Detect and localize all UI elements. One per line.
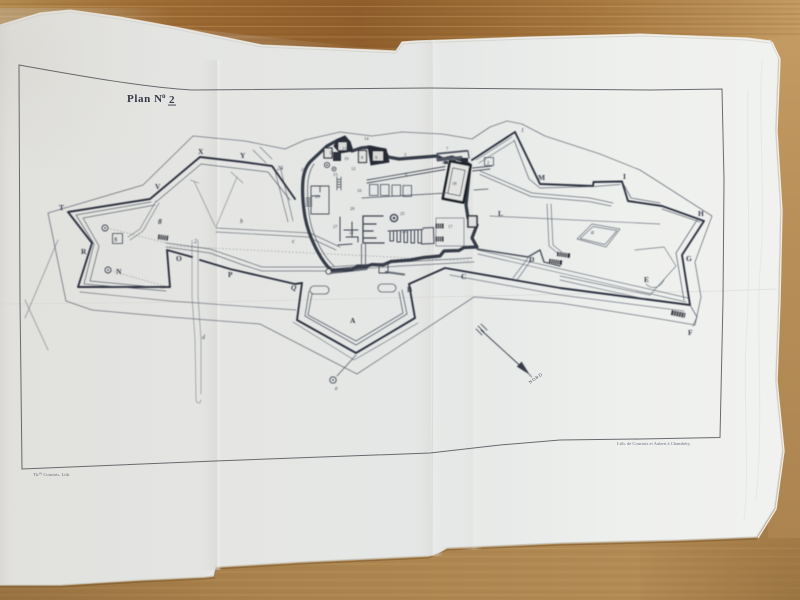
svg-text:13: 13 xyxy=(342,146,347,151)
svg-text:N: N xyxy=(116,267,122,276)
svg-text:F: F xyxy=(688,328,693,337)
svg-text:E: E xyxy=(644,275,649,284)
svg-text:27: 27 xyxy=(333,224,338,229)
svg-text:25: 25 xyxy=(400,211,405,216)
svg-text:D: D xyxy=(529,255,535,264)
svg-text:10: 10 xyxy=(344,156,349,161)
svg-text:1: 1 xyxy=(521,128,524,134)
svg-text:18: 18 xyxy=(452,181,457,186)
svg-text:Plan N: Plan N xyxy=(127,93,163,105)
svg-text:c: c xyxy=(292,239,295,245)
svg-text:A: A xyxy=(350,316,356,325)
svg-text:2: 2 xyxy=(194,239,197,245)
svg-text:12: 12 xyxy=(351,166,356,171)
svg-text:H: H xyxy=(698,209,704,218)
svg-text:2: 2 xyxy=(169,94,175,106)
svg-text:O: O xyxy=(176,254,182,263)
svg-text:23: 23 xyxy=(315,194,320,199)
svg-text:V: V xyxy=(155,182,161,191)
svg-text:M: M xyxy=(538,173,545,182)
svg-text:a: a xyxy=(591,230,594,236)
svg-text:11: 11 xyxy=(329,150,334,155)
svg-text:B: B xyxy=(407,285,412,294)
svg-text:24: 24 xyxy=(402,229,407,234)
svg-text:24: 24 xyxy=(277,165,283,172)
svg-text:I: I xyxy=(623,172,626,181)
svg-text:L: L xyxy=(498,209,503,218)
svg-text:22: 22 xyxy=(349,230,354,235)
svg-text:e: e xyxy=(335,386,338,392)
svg-text:15: 15 xyxy=(333,172,338,177)
svg-text:P: P xyxy=(228,270,233,279)
svg-text:Lith. de Courtois et Aubert à: Lith. de Courtois et Aubert à Chambéry. xyxy=(617,441,691,446)
svg-text:21: 21 xyxy=(301,167,306,172)
svg-text:16: 16 xyxy=(357,188,362,193)
svg-text:17: 17 xyxy=(448,224,453,229)
svg-text:20: 20 xyxy=(350,206,355,211)
svg-text:Y: Y xyxy=(240,151,246,160)
svg-text:Q: Q xyxy=(291,283,297,292)
svg-text:G: G xyxy=(686,254,692,263)
svg-text:8: 8 xyxy=(158,217,162,226)
svg-text:14: 14 xyxy=(364,136,369,141)
svg-text:T: T xyxy=(59,203,64,212)
svg-text:o: o xyxy=(162,92,166,100)
svg-text:C: C xyxy=(461,272,466,281)
svg-text:b: b xyxy=(240,219,243,225)
svg-text:R: R xyxy=(81,247,87,256)
svg-text:X: X xyxy=(198,147,204,156)
